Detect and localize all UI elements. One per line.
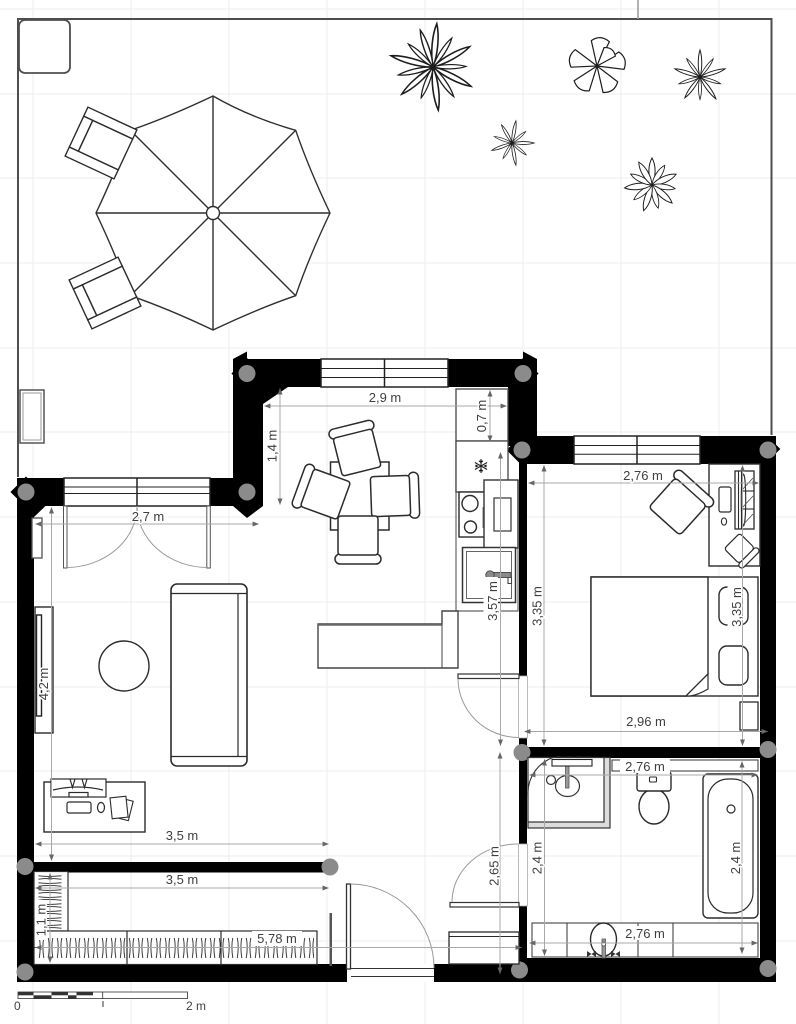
svg-text:2,4 m: 2,4 m: [728, 842, 743, 875]
svg-text:2,76 m: 2,76 m: [625, 926, 665, 941]
svg-text:3,5 m: 3,5 m: [166, 872, 199, 887]
svg-text:2,9 m: 2,9 m: [369, 390, 402, 405]
svg-text:4,2 m: 4,2 m: [36, 668, 51, 701]
svg-text:3,35 m: 3,35 m: [729, 587, 744, 627]
svg-text:2,76 m: 2,76 m: [623, 468, 663, 483]
svg-text:2,65 m: 2,65 m: [487, 846, 502, 886]
svg-text:2,76 m: 2,76 m: [625, 759, 665, 774]
svg-text:3,57 m: 3,57 m: [485, 581, 500, 621]
svg-text:2 m: 2 m: [186, 999, 206, 1013]
svg-text:1,1 m: 1,1 m: [34, 904, 49, 937]
svg-text:0: 0: [14, 999, 21, 1013]
svg-text:3,35 m: 3,35 m: [530, 586, 545, 626]
svg-text:0,7 m: 0,7 m: [474, 400, 489, 433]
svg-text:3,5 m: 3,5 m: [166, 828, 199, 843]
svg-text:2,96 m: 2,96 m: [626, 714, 666, 729]
svg-text:1,4 m: 1,4 m: [265, 430, 280, 463]
svg-text:5,78 m: 5,78 m: [257, 931, 297, 946]
svg-text:2,7 m: 2,7 m: [132, 509, 165, 524]
svg-text:2,4 m: 2,4 m: [530, 842, 545, 875]
